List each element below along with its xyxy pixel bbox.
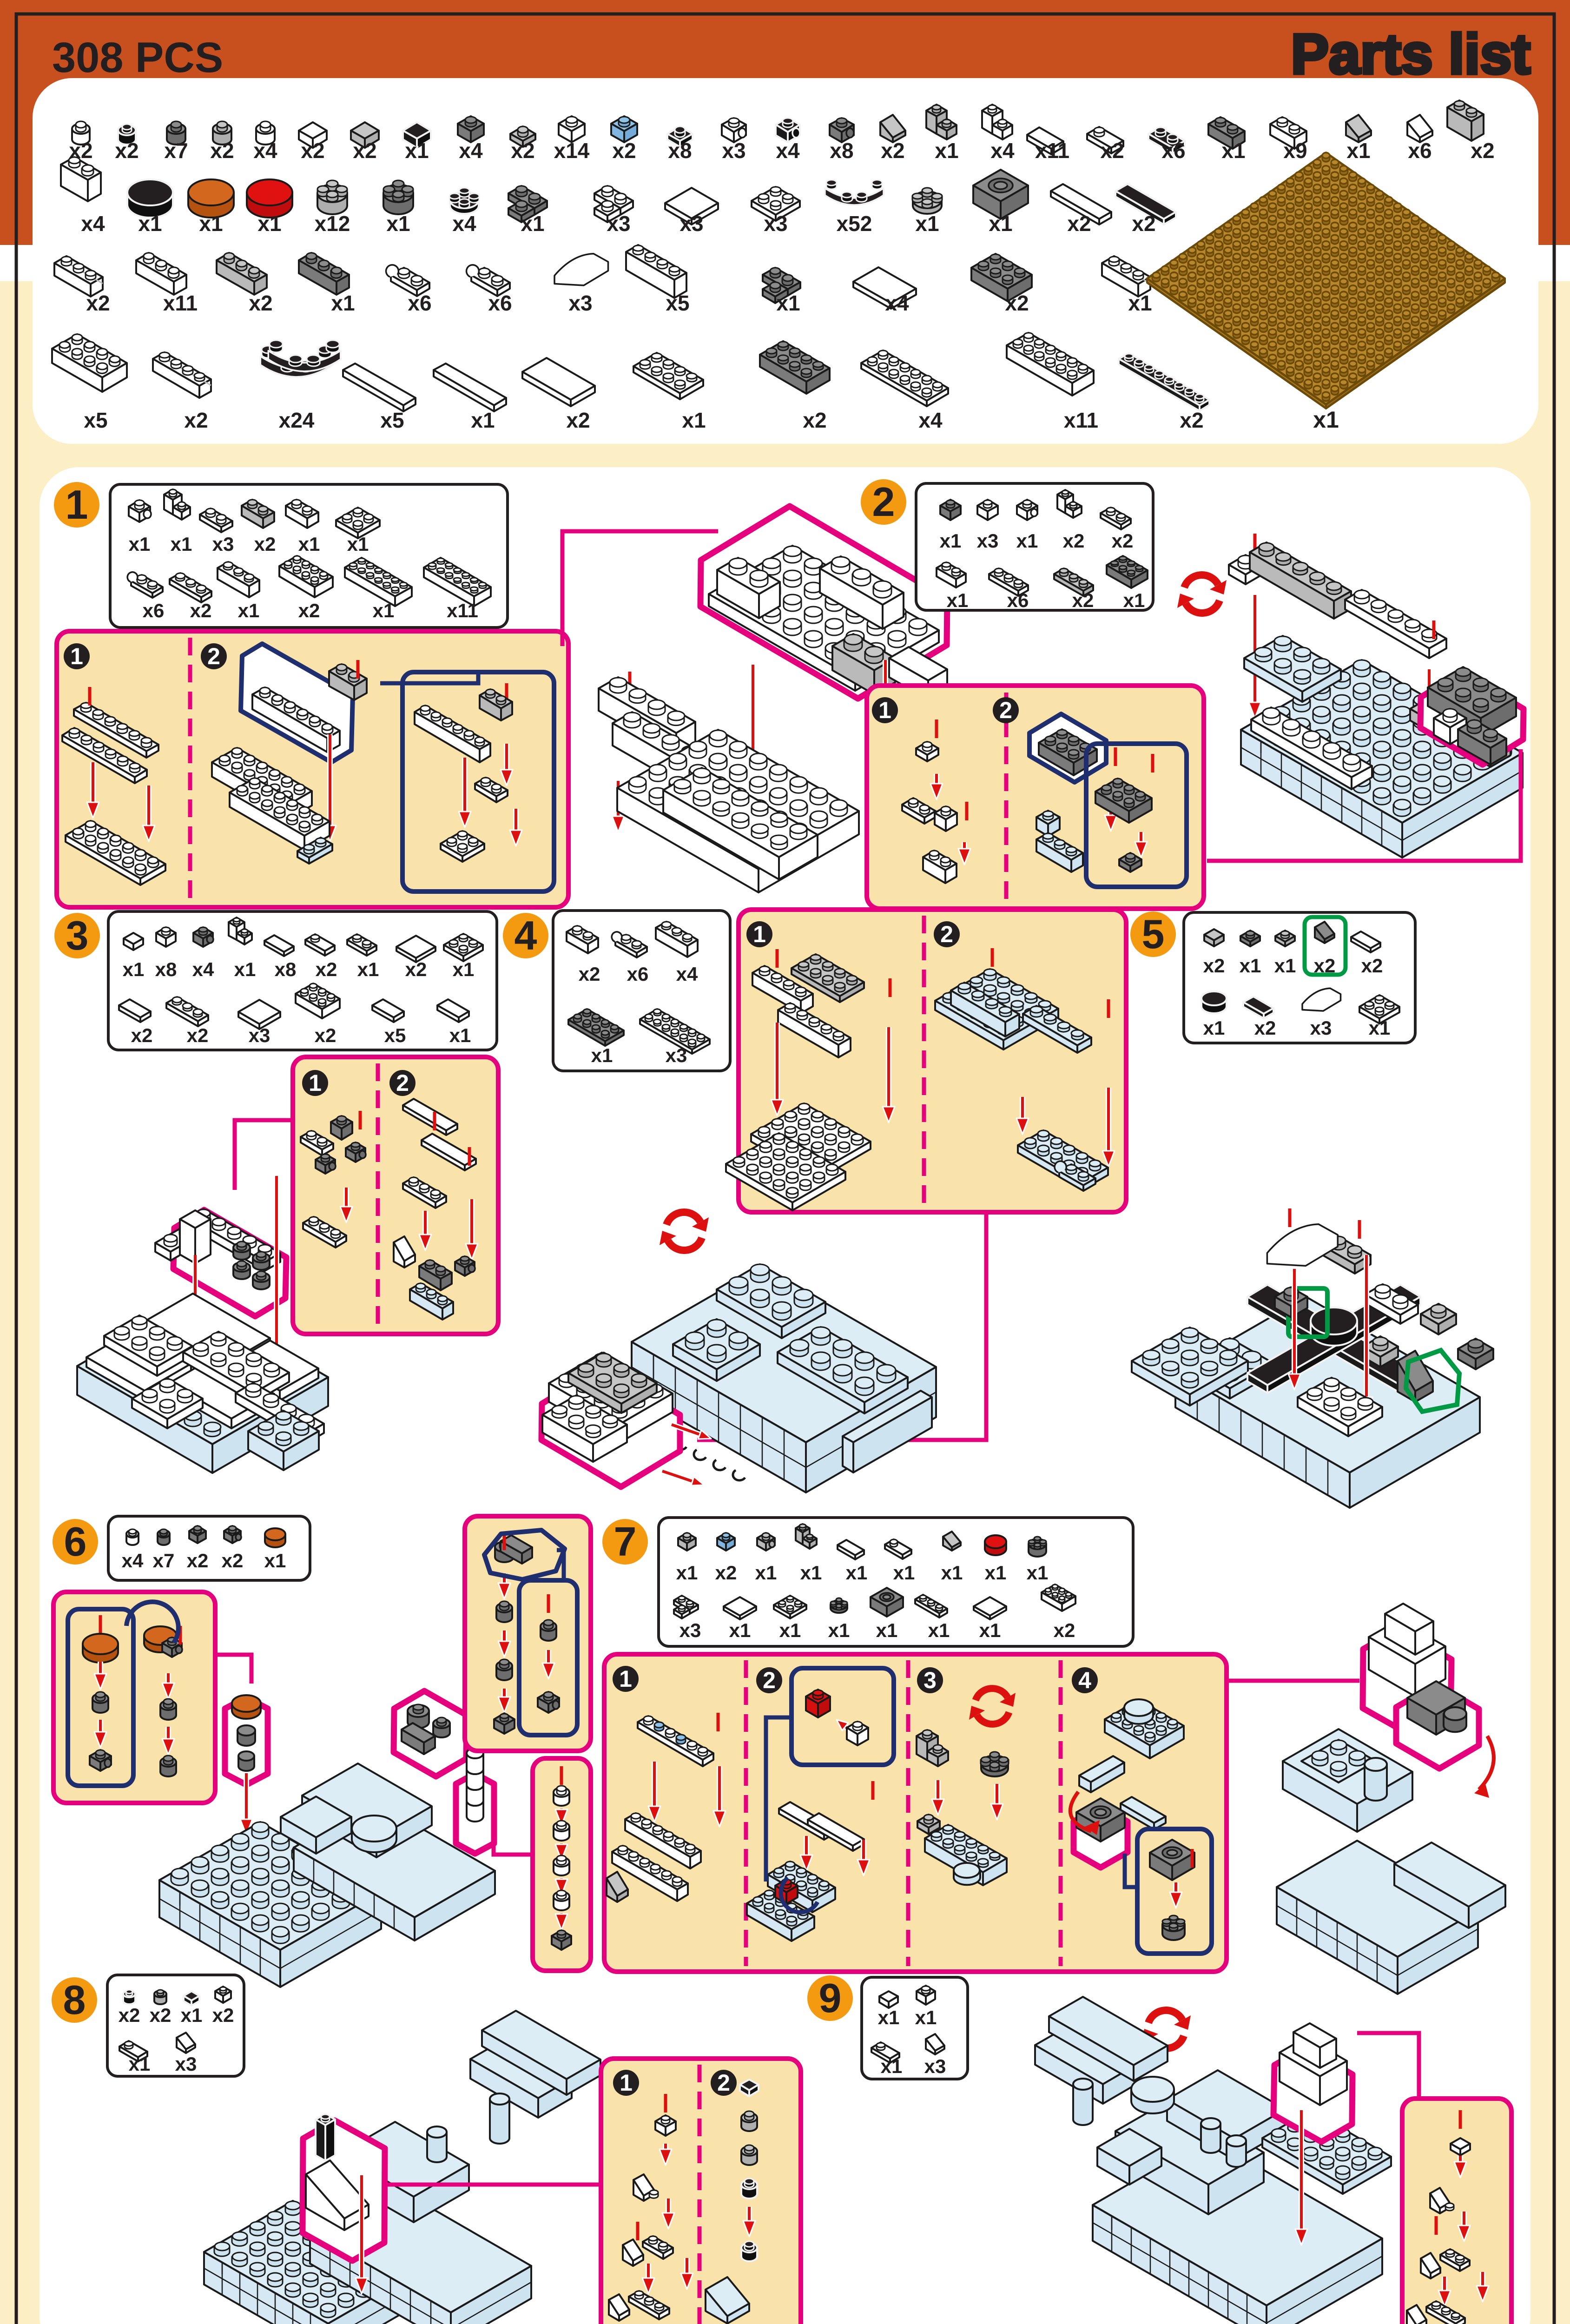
svg-text:x1: x1 xyxy=(357,958,379,980)
svg-text:x1: x1 xyxy=(893,1562,915,1584)
svg-text:6: 6 xyxy=(64,1519,87,1565)
svg-text:1: 1 xyxy=(66,482,88,528)
svg-text:x5: x5 xyxy=(84,408,107,432)
svg-text:3: 3 xyxy=(66,912,89,958)
svg-text:5: 5 xyxy=(1142,911,1165,957)
svg-text:x2: x2 xyxy=(301,139,324,163)
svg-text:x1: x1 xyxy=(1313,407,1339,433)
svg-text:x1: x1 xyxy=(876,1619,898,1641)
svg-text:x8: x8 xyxy=(155,958,177,980)
svg-text:x11: x11 xyxy=(1035,139,1069,163)
svg-text:x1: x1 xyxy=(123,958,145,980)
svg-text:1: 1 xyxy=(70,643,83,669)
svg-text:x1: x1 xyxy=(1240,955,1261,977)
svg-text:x11: x11 xyxy=(1064,408,1098,432)
svg-text:x4: x4 xyxy=(918,408,943,432)
svg-text:x1: x1 xyxy=(828,1619,850,1641)
svg-text:x1: x1 xyxy=(298,533,320,555)
svg-text:1: 1 xyxy=(878,697,891,723)
svg-text:x5: x5 xyxy=(666,291,689,315)
svg-text:x4: x4 xyxy=(885,291,909,315)
svg-text:x2: x2 xyxy=(511,139,534,163)
svg-text:x2: x2 xyxy=(184,408,208,432)
svg-text:x11: x11 xyxy=(447,600,478,621)
svg-text:x3: x3 xyxy=(568,291,592,315)
svg-text:x12: x12 xyxy=(315,211,350,236)
svg-text:x1: x1 xyxy=(928,1619,950,1641)
svg-text:x6: x6 xyxy=(1161,139,1185,163)
svg-text:7: 7 xyxy=(614,1519,637,1565)
svg-text:x2: x2 xyxy=(212,2004,234,2026)
svg-text:x2: x2 xyxy=(881,139,904,163)
svg-text:x1: x1 xyxy=(800,1562,822,1584)
svg-text:x2: x2 xyxy=(405,958,427,980)
svg-text:x1: x1 xyxy=(171,533,192,555)
svg-text:x1: x1 xyxy=(331,291,355,315)
svg-text:x3: x3 xyxy=(924,2055,946,2077)
svg-text:x1: x1 xyxy=(989,211,1012,236)
svg-text:x3: x3 xyxy=(1310,1017,1332,1039)
svg-text:x2: x2 xyxy=(1254,1017,1276,1039)
svg-text:x9: x9 xyxy=(1283,139,1307,163)
svg-text:x52: x52 xyxy=(837,211,872,236)
svg-text:x4: x4 xyxy=(253,139,277,163)
svg-text:x3: x3 xyxy=(764,211,787,236)
svg-text:x1: x1 xyxy=(1128,291,1152,315)
svg-text:x2: x2 xyxy=(1054,1619,1075,1641)
svg-text:x1: x1 xyxy=(776,291,800,315)
svg-text:x1: x1 xyxy=(199,211,223,236)
svg-text:x1: x1 xyxy=(878,2007,900,2028)
svg-text:x11: x11 xyxy=(163,291,198,315)
svg-text:x1: x1 xyxy=(1027,1562,1049,1584)
svg-text:x1: x1 xyxy=(1369,1017,1391,1039)
svg-text:x1: x1 xyxy=(1346,139,1370,163)
svg-text:x1: x1 xyxy=(935,139,958,163)
svg-text:x3: x3 xyxy=(212,533,234,555)
svg-text:x5: x5 xyxy=(380,408,404,432)
svg-text:x2: x2 xyxy=(353,139,376,163)
svg-text:1: 1 xyxy=(753,921,766,947)
svg-text:x5: x5 xyxy=(384,1024,406,1046)
svg-text:x1: x1 xyxy=(729,1619,751,1641)
svg-text:x4: x4 xyxy=(192,958,214,980)
svg-text:2: 2 xyxy=(763,1667,776,1693)
svg-text:x1: x1 xyxy=(1123,589,1145,611)
svg-text:1: 1 xyxy=(309,1070,322,1096)
svg-text:x1: x1 xyxy=(181,2004,203,2026)
svg-text:8: 8 xyxy=(63,1977,86,2023)
svg-text:x8: x8 xyxy=(275,958,297,980)
svg-text:3: 3 xyxy=(924,1667,937,1693)
svg-text:x1: x1 xyxy=(257,211,281,236)
svg-text:x1: x1 xyxy=(779,1619,801,1641)
svg-text:x1: x1 xyxy=(238,600,260,621)
svg-text:x1: x1 xyxy=(373,600,395,621)
svg-text:x1: x1 xyxy=(1221,139,1245,163)
svg-text:x1: x1 xyxy=(846,1562,868,1584)
svg-text:x3: x3 xyxy=(679,1619,701,1641)
svg-text:x1: x1 xyxy=(453,958,475,980)
svg-text:x1: x1 xyxy=(386,211,410,236)
svg-text:x4: x4 xyxy=(122,1550,144,1571)
svg-text:x3: x3 xyxy=(977,530,999,552)
svg-text:x14: x14 xyxy=(554,139,590,163)
svg-text:x1: x1 xyxy=(985,1562,1007,1584)
svg-text:x2: x2 xyxy=(1180,408,1203,432)
svg-text:1: 1 xyxy=(620,2070,633,2096)
svg-text:x2: x2 xyxy=(115,139,139,163)
svg-text:x1: x1 xyxy=(1016,530,1038,552)
svg-text:x2: x2 xyxy=(249,291,272,315)
svg-text:x1: x1 xyxy=(755,1562,777,1584)
svg-text:x6: x6 xyxy=(408,291,431,315)
svg-text:2: 2 xyxy=(207,643,220,669)
svg-text:x4: x4 xyxy=(676,963,698,985)
svg-text:1: 1 xyxy=(619,1666,632,1692)
svg-text:9: 9 xyxy=(819,1975,842,2021)
svg-text:x1: x1 xyxy=(915,211,939,236)
svg-text:x2: x2 xyxy=(1203,955,1225,977)
svg-text:x3: x3 xyxy=(666,1044,687,1066)
svg-text:x2: x2 xyxy=(190,600,212,621)
svg-text:4: 4 xyxy=(1078,1667,1091,1693)
svg-text:x2: x2 xyxy=(316,958,337,980)
svg-text:x24: x24 xyxy=(279,408,315,432)
svg-text:x2: x2 xyxy=(1005,291,1029,315)
svg-text:x2: x2 xyxy=(131,1024,153,1046)
svg-text:x8: x8 xyxy=(668,139,692,163)
svg-text:x1: x1 xyxy=(449,1024,471,1046)
svg-text:x2: x2 xyxy=(1100,139,1124,163)
svg-text:x3: x3 xyxy=(175,2053,197,2075)
svg-text:x2: x2 xyxy=(715,1562,737,1584)
svg-text:x6: x6 xyxy=(143,600,165,621)
svg-text:x7: x7 xyxy=(153,1550,175,1571)
svg-text:x1: x1 xyxy=(881,2055,903,2077)
svg-text:x1: x1 xyxy=(941,1562,963,1584)
svg-text:x1: x1 xyxy=(591,1044,613,1066)
svg-text:x1: x1 xyxy=(405,139,429,163)
svg-text:x8: x8 xyxy=(830,139,853,163)
svg-text:x7: x7 xyxy=(164,139,188,163)
svg-text:x3: x3 xyxy=(607,211,630,236)
svg-text:x2: x2 xyxy=(119,2004,140,2026)
svg-text:x3: x3 xyxy=(722,139,745,163)
svg-text:x2: x2 xyxy=(315,1024,336,1046)
svg-text:x2: x2 xyxy=(1067,211,1091,236)
svg-text:x2: x2 xyxy=(187,1550,209,1571)
svg-text:x2: x2 xyxy=(1072,589,1094,611)
svg-text:x2: x2 xyxy=(1132,211,1155,236)
svg-text:x1: x1 xyxy=(138,211,162,236)
svg-text:x2: x2 xyxy=(210,139,234,163)
svg-text:x2: x2 xyxy=(187,1024,209,1046)
svg-text:x2: x2 xyxy=(612,139,636,163)
svg-text:x2: x2 xyxy=(566,408,590,432)
svg-text:2: 2 xyxy=(396,1070,409,1096)
svg-text:x1: x1 xyxy=(947,589,969,611)
svg-text:x6: x6 xyxy=(488,291,512,315)
svg-text:x4: x4 xyxy=(452,211,476,236)
svg-text:308 PCS: 308 PCS xyxy=(52,34,223,81)
svg-text:x2: x2 xyxy=(579,963,600,985)
svg-text:2: 2 xyxy=(717,2070,730,2096)
svg-text:x2: x2 xyxy=(1361,955,1383,977)
svg-text:x1: x1 xyxy=(676,1562,698,1584)
svg-text:x2: x2 xyxy=(1063,530,1085,552)
svg-text:x1: x1 xyxy=(940,530,962,552)
svg-text:x2: x2 xyxy=(150,2004,172,2026)
svg-text:x1: x1 xyxy=(347,533,369,555)
svg-text:x4: x4 xyxy=(459,139,483,163)
svg-text:x2: x2 xyxy=(803,408,826,432)
svg-text:x6: x6 xyxy=(1408,139,1431,163)
svg-text:x6: x6 xyxy=(1007,589,1029,611)
svg-text:x2: x2 xyxy=(222,1550,244,1571)
svg-text:2: 2 xyxy=(999,697,1012,723)
svg-text:x2: x2 xyxy=(1471,139,1494,163)
svg-text:2: 2 xyxy=(940,921,953,947)
svg-text:x2: x2 xyxy=(86,291,110,315)
svg-text:x4: x4 xyxy=(776,139,800,163)
svg-text:x4: x4 xyxy=(81,211,105,236)
svg-text:x1: x1 xyxy=(521,211,544,236)
svg-text:x2: x2 xyxy=(1112,530,1134,552)
svg-text:x2: x2 xyxy=(254,533,276,555)
svg-text:x1: x1 xyxy=(129,2053,151,2075)
svg-text:x1: x1 xyxy=(682,408,706,432)
svg-text:2: 2 xyxy=(872,479,895,525)
svg-text:x3: x3 xyxy=(679,211,703,236)
svg-text:x1: x1 xyxy=(1203,1017,1225,1039)
svg-text:x1: x1 xyxy=(471,408,495,432)
svg-text:x1: x1 xyxy=(234,958,256,980)
svg-text:x1: x1 xyxy=(1274,955,1296,977)
svg-text:Parts list: Parts list xyxy=(1291,22,1530,86)
svg-text:x1: x1 xyxy=(264,1550,286,1571)
svg-text:4: 4 xyxy=(515,912,537,958)
svg-text:x4: x4 xyxy=(990,139,1015,163)
svg-text:x1: x1 xyxy=(979,1619,1001,1641)
svg-text:x2: x2 xyxy=(298,600,320,621)
svg-text:x1: x1 xyxy=(129,533,151,555)
svg-text:x3: x3 xyxy=(249,1024,270,1046)
svg-text:x2: x2 xyxy=(1314,955,1336,977)
svg-text:x1: x1 xyxy=(915,2007,937,2028)
svg-text:x6: x6 xyxy=(627,963,649,985)
